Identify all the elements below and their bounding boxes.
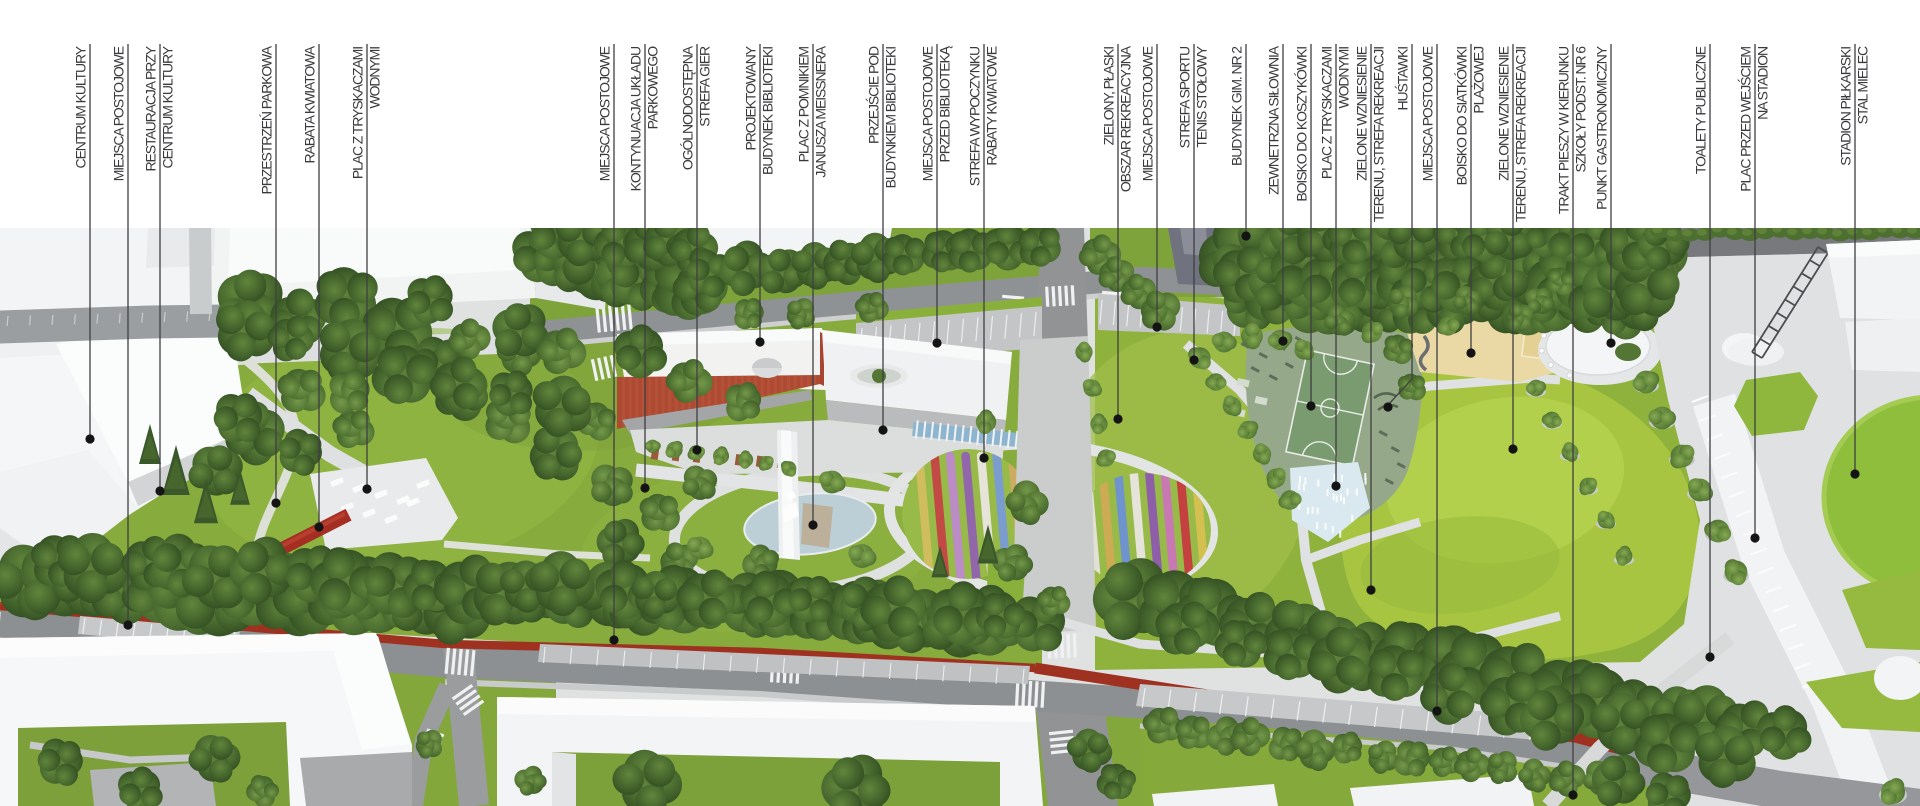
svg-text:STAL MIELEC: STAL MIELEC xyxy=(1855,46,1871,124)
svg-text:CENTRUM KULTURY: CENTRUM KULTURY xyxy=(73,45,89,168)
svg-text:ZIELONE WZNIESIENIE: ZIELONE WZNIESIENIE xyxy=(1496,46,1512,181)
svg-text:PROJEKTOWANY: PROJEKTOWANY xyxy=(743,45,759,150)
svg-text:PARKOWEGO: PARKOWEGO xyxy=(645,46,661,130)
svg-text:TRAKT PIESZY W KIERUNKU: TRAKT PIESZY W KIERUNKU xyxy=(1556,46,1572,214)
svg-text:BOISKO DO KOSZYKÓWKI: BOISKO DO KOSZYKÓWKI xyxy=(1294,47,1310,202)
svg-text:SZKOŁY PODST. NR 6: SZKOŁY PODST. NR 6 xyxy=(1573,46,1589,173)
svg-text:PRZESTRZEŃ PARKOWA: PRZESTRZEŃ PARKOWA xyxy=(259,45,275,194)
svg-text:BUDYNEK GIM. NR 2: BUDYNEK GIM. NR 2 xyxy=(1229,46,1245,166)
svg-text:NA STADION: NA STADION xyxy=(1755,47,1771,120)
svg-text:PUNKT GASTRONOMICZNY: PUNKT GASTRONOMICZNY xyxy=(1594,45,1610,210)
svg-text:BUDYNEK BIBLIOTEKI: BUDYNEK BIBLIOTEKI xyxy=(760,47,776,175)
svg-text:OBSZAR REKREACYJNA: OBSZAR REKREACYJNA xyxy=(1118,45,1134,192)
svg-text:PLAC Z TRYSKACZAMI: PLAC Z TRYSKACZAMI xyxy=(1319,47,1335,179)
svg-text:WODNYMI: WODNYMI xyxy=(1336,47,1352,109)
svg-text:PRZEJŚCIE POD: PRZEJŚCIE POD xyxy=(865,46,882,144)
svg-text:WODNYMI: WODNYMI xyxy=(367,47,383,109)
svg-text:MIEJSCA POSTOJOWE: MIEJSCA POSTOJOWE xyxy=(920,46,936,181)
svg-text:TERENU, STREFA REKREACJI: TERENU, STREFA REKREACJI xyxy=(1371,47,1387,222)
svg-text:ZIELONY, PŁASKI: ZIELONY, PŁASKI xyxy=(1101,47,1117,146)
svg-text:STADION PIŁKARSKI: STADION PIŁKARSKI xyxy=(1838,47,1854,166)
svg-text:JANUSZA MEISSNERA: JANUSZA MEISSNERA xyxy=(813,45,829,177)
svg-text:PLAC Z TRYSKACZAMI: PLAC Z TRYSKACZAMI xyxy=(350,47,366,179)
svg-text:PRZED BIBLIOTEKĄ: PRZED BIBLIOTEKĄ xyxy=(937,45,953,162)
svg-text:MIEJSCA POSTOJOWE: MIEJSCA POSTOJOWE xyxy=(1420,46,1436,181)
svg-text:RABATA KWIATOWA: RABATA KWIATOWA xyxy=(302,45,318,163)
svg-text:RABATY KWIATOWE: RABATY KWIATOWE xyxy=(984,46,1000,165)
svg-text:HUŚTAWKI: HUŚTAWKI xyxy=(1394,47,1411,111)
svg-text:PLAC PRZED WEJŚCIEM: PLAC PRZED WEJŚCIEM xyxy=(1737,47,1754,192)
svg-text:KONTYNUACJA UKŁADU: KONTYNUACJA UKŁADU xyxy=(628,46,644,191)
svg-text:CENTRUM KULTURY: CENTRUM KULTURY xyxy=(160,45,176,168)
svg-text:ZEWNETRZNA SIŁOWNIA: ZEWNETRZNA SIŁOWNIA xyxy=(1266,45,1282,195)
svg-text:BUDYNKIEM BIBLIOTEKI: BUDYNKIEM BIBLIOTEKI xyxy=(883,47,899,189)
svg-text:MIEJSCA POSTOJOWE: MIEJSCA POSTOJOWE xyxy=(1140,46,1156,181)
svg-text:STREFA GIER: STREFA GIER xyxy=(697,46,713,127)
svg-text:RESTAURACJA PRZY: RESTAURACJA PRZY xyxy=(143,45,159,171)
svg-text:STREFA SPORTU: STREFA SPORTU xyxy=(1177,46,1193,148)
svg-text:TERENU, STREFA REKREACJI: TERENU, STREFA REKREACJI xyxy=(1513,47,1529,222)
svg-text:STREFA WYPOCZYNKU: STREFA WYPOCZYNKU xyxy=(967,46,983,186)
svg-text:PLAŻOWEJ: PLAŻOWEJ xyxy=(1470,47,1487,114)
svg-text:PLAC Z POMNIKIEM: PLAC Z POMNIKIEM xyxy=(796,47,812,163)
svg-text:ZIELONE WZNIESIENIE: ZIELONE WZNIESIENIE xyxy=(1354,46,1370,181)
svg-text:BOISKO DO SIATKÓWKI: BOISKO DO SIATKÓWKI xyxy=(1454,47,1470,186)
svg-text:MIEJSCA POSTOJOWE: MIEJSCA POSTOJOWE xyxy=(597,46,613,181)
svg-text:TENIS STOŁOWY: TENIS STOŁOWY xyxy=(1194,45,1210,147)
svg-text:TOALETY PUBLICZNE: TOALETY PUBLICZNE xyxy=(1693,46,1709,174)
svg-text:OGÓLNODOSTĘPNA: OGÓLNODOSTĘPNA xyxy=(680,45,696,170)
svg-text:MIEJSCA POSTOJOWE: MIEJSCA POSTOJOWE xyxy=(111,46,127,181)
